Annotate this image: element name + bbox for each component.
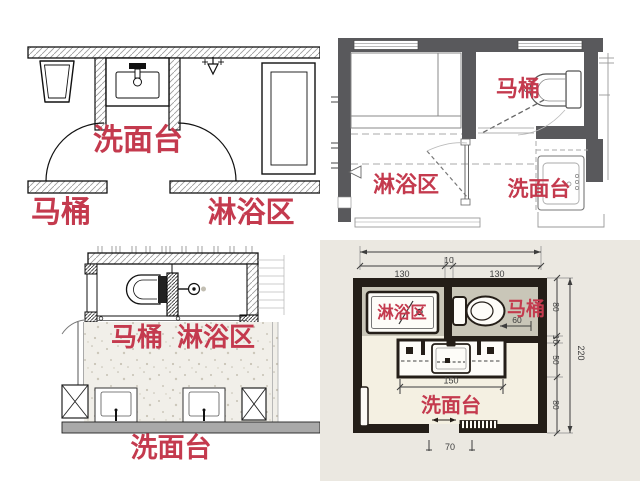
svg-text:130: 130 — [394, 269, 409, 279]
toilet-icon — [40, 61, 74, 102]
top-wall — [88, 253, 258, 264]
svg-text:80: 80 — [551, 302, 561, 312]
washbasin-label: 洗面台 — [508, 177, 571, 201]
bathroom-layout-collage: 洗面台 马桶 淋浴区 — [0, 0, 640, 481]
washbasin-label: 洗面台 — [93, 123, 183, 157]
bottom-wall — [62, 422, 320, 433]
svg-text:130: 130 — [489, 269, 504, 279]
floorplan-bottom-left: 马桶 淋浴区 洗面台 — [0, 240, 320, 481]
svg-text:10: 10 — [444, 255, 454, 265]
floorplan-bottom-right: 60 150 70 — [320, 240, 640, 481]
column-left — [62, 385, 88, 418]
column-right — [242, 388, 266, 420]
svg-text:70: 70 — [445, 442, 455, 452]
bathtub — [351, 53, 461, 128]
svg-text:80: 80 — [551, 400, 561, 410]
shower-partition — [167, 264, 206, 316]
room-sill — [97, 316, 247, 321]
shower-label: 淋浴区 — [377, 302, 427, 322]
toilet-icon — [127, 275, 167, 304]
toilet-icon — [447, 297, 505, 326]
svg-text:220: 220 — [576, 345, 586, 360]
floorplan-top-left: 洗面台 马桶 淋浴区 — [0, 0, 320, 240]
right-wall — [240, 264, 258, 328]
sink-icon-left — [95, 388, 137, 422]
shower-label: 淋浴区 — [177, 322, 255, 352]
sink-alcove — [95, 58, 180, 130]
wall-ticks — [331, 97, 338, 168]
toilet-label: 马桶 — [111, 322, 163, 352]
right-steps — [258, 255, 284, 315]
svg-text:10: 10 — [551, 335, 561, 345]
bottom-walls — [28, 181, 320, 193]
dimension-ticks — [98, 246, 252, 253]
top-wall — [28, 47, 320, 58]
shower-label: 淋浴区 — [373, 172, 439, 197]
toilet-label: 马桶 — [507, 297, 545, 320]
floorplan-top-right: 马桶 淋浴区 洗面台 — [320, 0, 640, 240]
toilet-label: 马桶 — [496, 76, 540, 101]
svg-text:150: 150 — [443, 376, 458, 386]
toilet-label: 马桶 — [31, 196, 91, 229]
left-door-panel — [360, 387, 368, 426]
svg-text:50: 50 — [551, 355, 561, 365]
vanity-counter — [398, 337, 505, 377]
shower-label: 淋浴区 — [207, 196, 294, 229]
shower-head-icon — [202, 57, 224, 74]
sink-icon-right — [183, 388, 225, 422]
shower-enclosure — [262, 63, 315, 174]
washbasin-label: 洗面台 — [131, 432, 212, 463]
washbasin-label: 洗面台 — [421, 393, 481, 417]
